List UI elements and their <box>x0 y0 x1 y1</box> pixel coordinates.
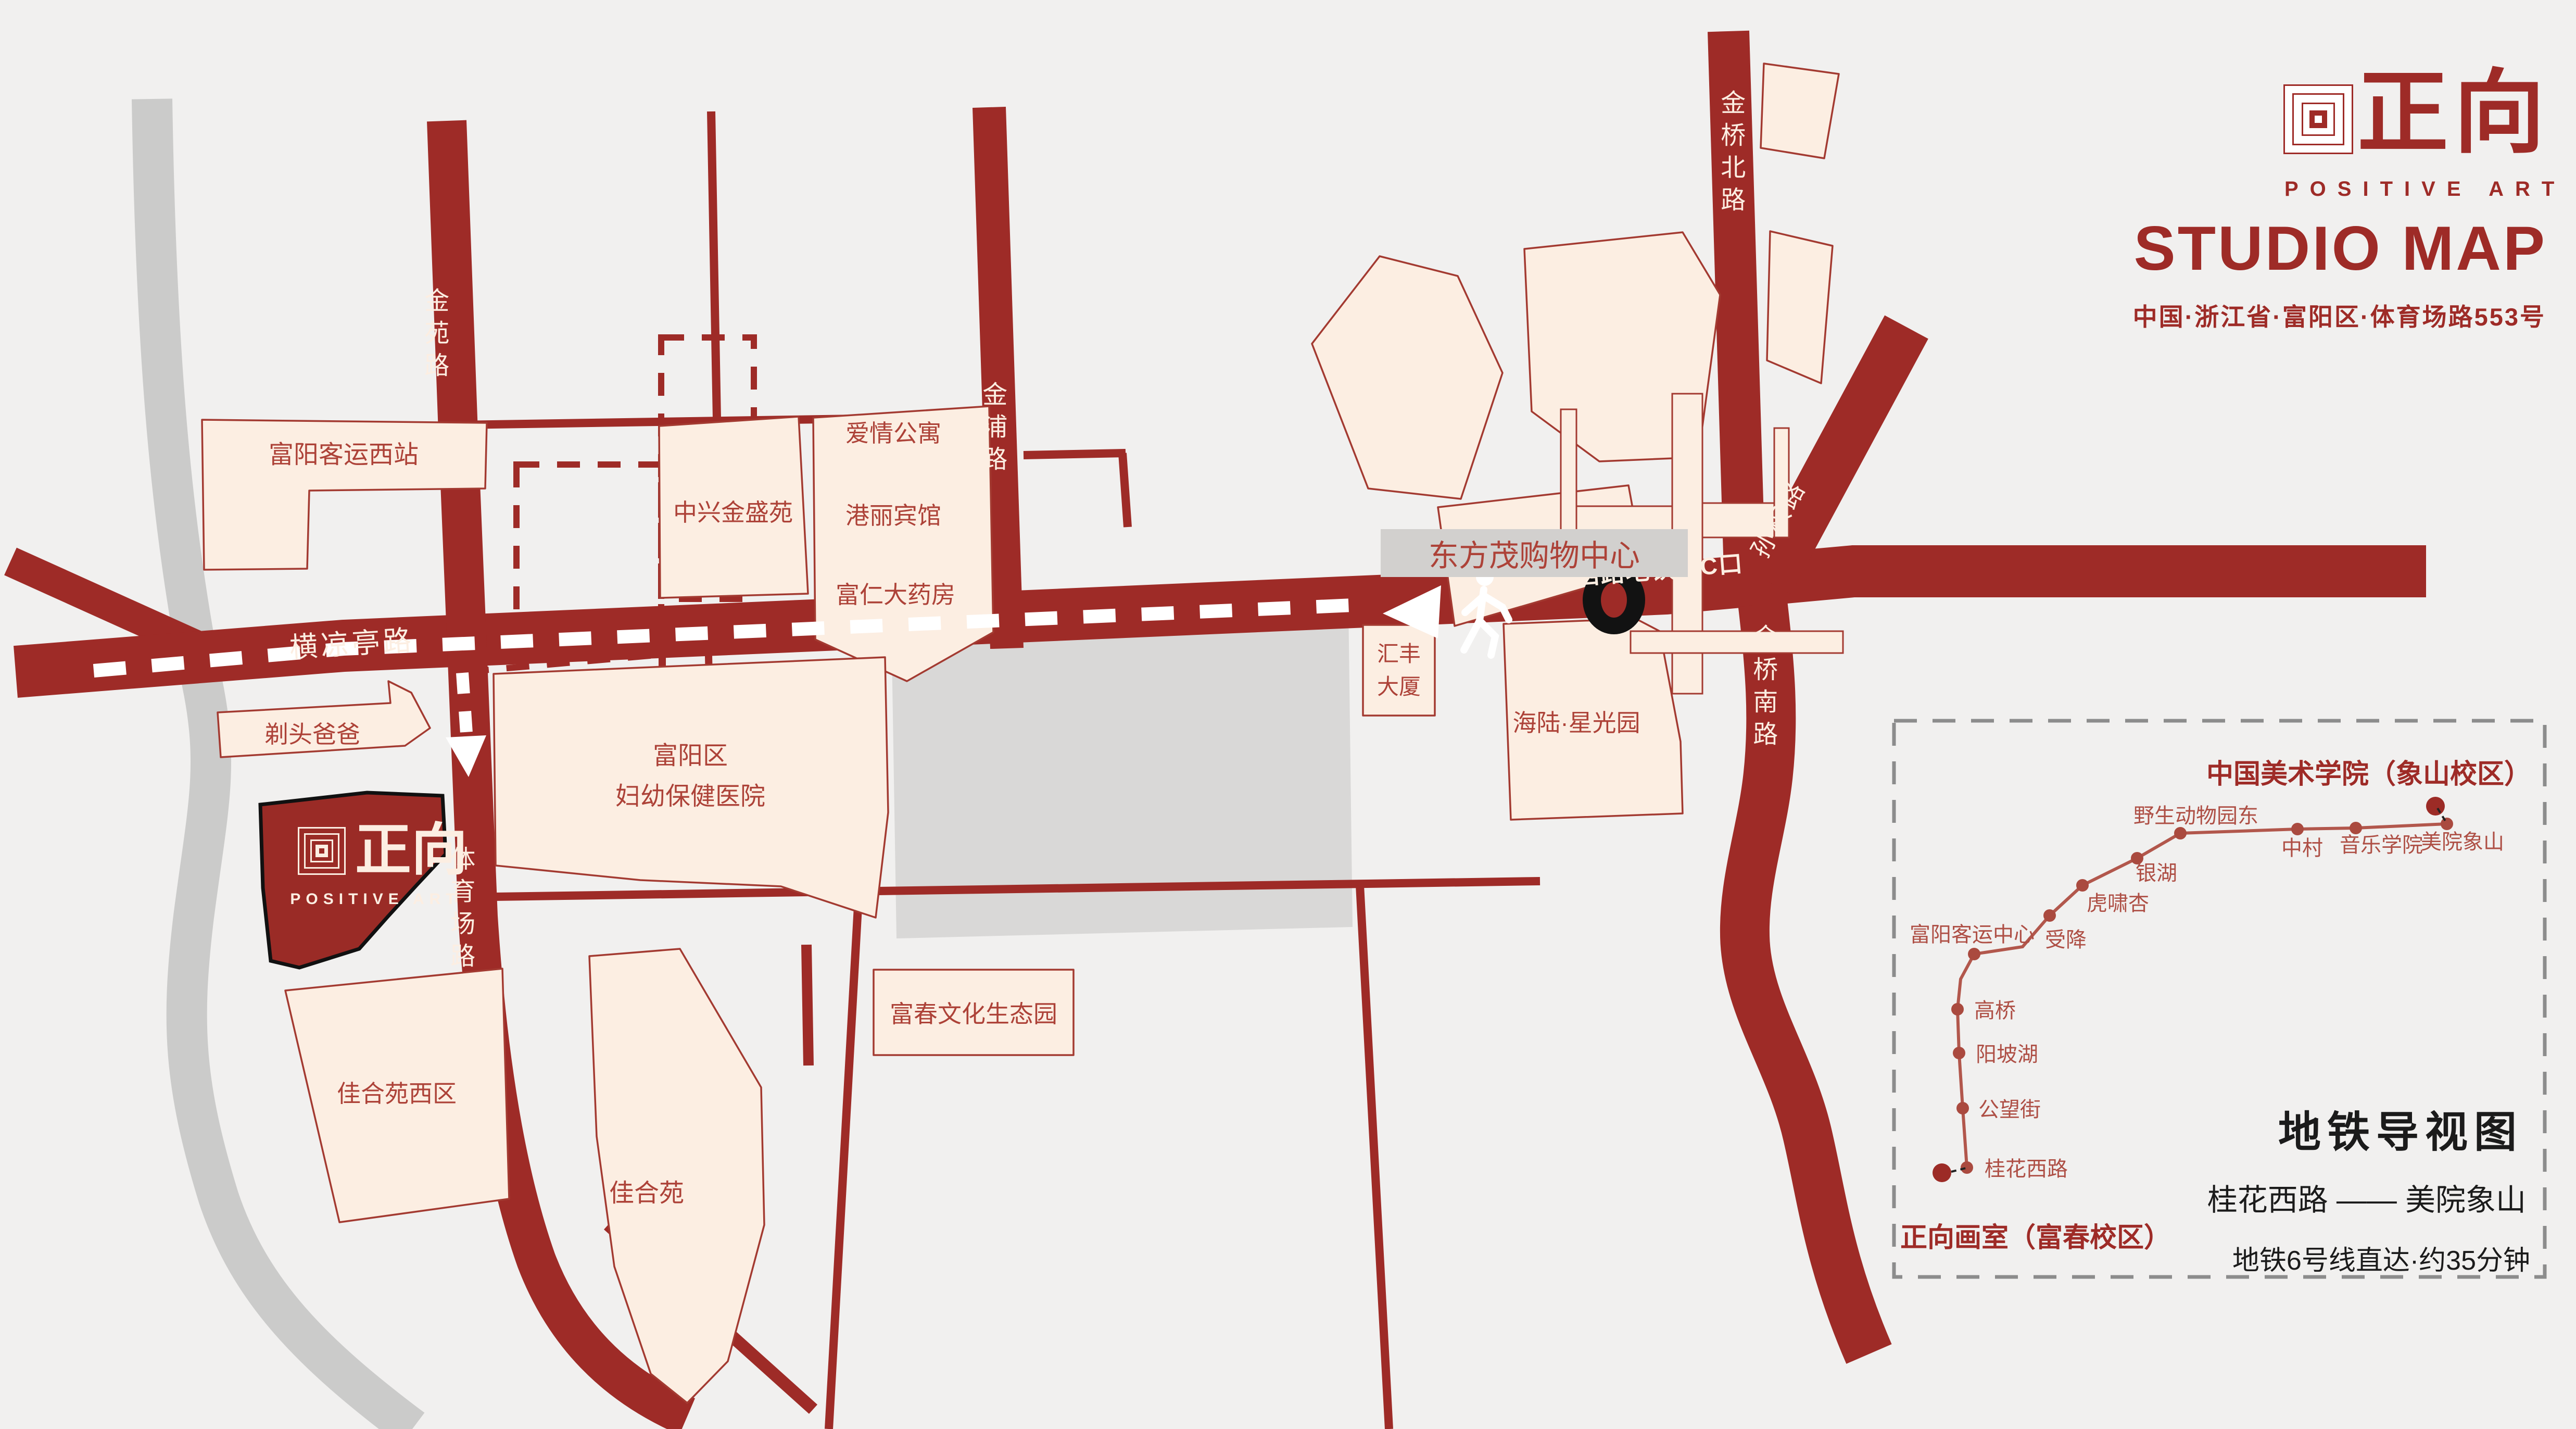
building-ne-quad-1 <box>1761 64 1839 158</box>
label-dongfangmao: 东方茂购物中心 <box>1429 531 1640 575</box>
building-ne-quad-2 <box>1767 231 1833 383</box>
label-fuchun-wrap: 富春文化生态园 <box>874 970 1074 1055</box>
label-titou-baba: 剃头爸爸 <box>219 721 406 748</box>
label-furen: 富仁大药房 <box>791 581 1000 609</box>
station-gongwangjie: 公望街 <box>1978 1098 2041 1122</box>
station-huxiaoxing: 虎啸杏 <box>2087 892 2149 916</box>
station-yangpohu: 阳坡湖 <box>1976 1043 2038 1067</box>
label-jiaheyuan-west: 佳合苑西区 <box>293 1080 501 1108</box>
panel-route: 桂花西路 —— 美院象山 <box>2207 1183 2526 1218</box>
brand-address: 中国·浙江省·富阳区·体育场路553号 <box>2133 303 2546 331</box>
label-huifeng-wrap: 汇丰大厦 <box>1363 625 1435 716</box>
road-label-jinyuan: 金苑路 <box>420 287 448 384</box>
label-zhongxing: 中兴金盛苑 <box>639 499 827 527</box>
station-shoujiang: 受降 <box>2045 928 2087 952</box>
page-title: STUDIO MAP <box>2134 212 2547 284</box>
panel-title: 地铁导视图 <box>2278 1108 2523 1157</box>
label-hospital-line2: 妇幼保健医院 <box>565 782 815 811</box>
station-meiyuanxiangshan: 美院象山 <box>2421 830 2504 854</box>
label-fuchun-park: 富春文化生态园 <box>890 995 1057 1030</box>
station-gaoqiao: 高桥 <box>1974 999 2016 1023</box>
brand-logo-en: POSITIVE ART <box>2284 177 2545 201</box>
label-jiaheyuan: 佳合苑 <box>569 1179 725 1208</box>
label-fuyang-west-station: 富阳客运西站 <box>245 441 443 469</box>
building-dongfangmao-a <box>1312 256 1502 499</box>
label-gangli: 港丽宾馆 <box>800 502 987 530</box>
studio-marker-logo-icon <box>298 827 346 875</box>
label-box-dongfangmao: 东方茂购物中心 <box>1381 529 1688 577</box>
label-aiqing: 爱情公寓 <box>800 420 987 447</box>
station-yinyuexueyuan: 音乐学院 <box>2340 833 2423 857</box>
station-fuyangkeyun: 富阳客运中心 <box>1910 923 2035 947</box>
road-label-jinqiao-south: 金桥南路 <box>1748 624 1777 753</box>
label-huifeng: 汇丰大厦 <box>1375 637 1422 703</box>
station-yeshengdongwuyuandong: 野生动物园东 <box>2133 804 2258 828</box>
brand-logo-icon <box>2283 84 2353 154</box>
studio-marker-logo-cn: 正向 <box>355 819 468 883</box>
brand-logo-cn: 正向 <box>2357 61 2550 166</box>
studio-map-poster: 金苑路 横凉亭路 体育场路 金浦路 金桥北路 金桥南路 孙权路 桂花西路地铁站C… <box>0 0 2576 1429</box>
station-guihuaxilu: 桂花西路 <box>1985 1157 2068 1181</box>
panel-note: 地铁6号线直达·约35分钟 <box>2232 1246 2530 1277</box>
river-band <box>152 99 412 1429</box>
station-yinhu: 银湖 <box>2136 861 2177 885</box>
label-hailu: 海陆·星光园 <box>1493 709 1660 737</box>
building-aiqing <box>813 406 993 681</box>
panel-terminus-top: 中国美术学院（象山校区） <box>2206 759 2531 791</box>
panel-terminus-bottom: 正向画室（富春校区） <box>1900 1223 2171 1254</box>
road-label-jinqiao-north: 金桥北路 <box>1716 90 1745 219</box>
station-zhongcun: 中村 <box>2281 836 2323 860</box>
label-hospital-line1: 富阳区 <box>565 742 815 770</box>
studio-marker-logo-en: POSITIVE ART <box>289 891 461 909</box>
